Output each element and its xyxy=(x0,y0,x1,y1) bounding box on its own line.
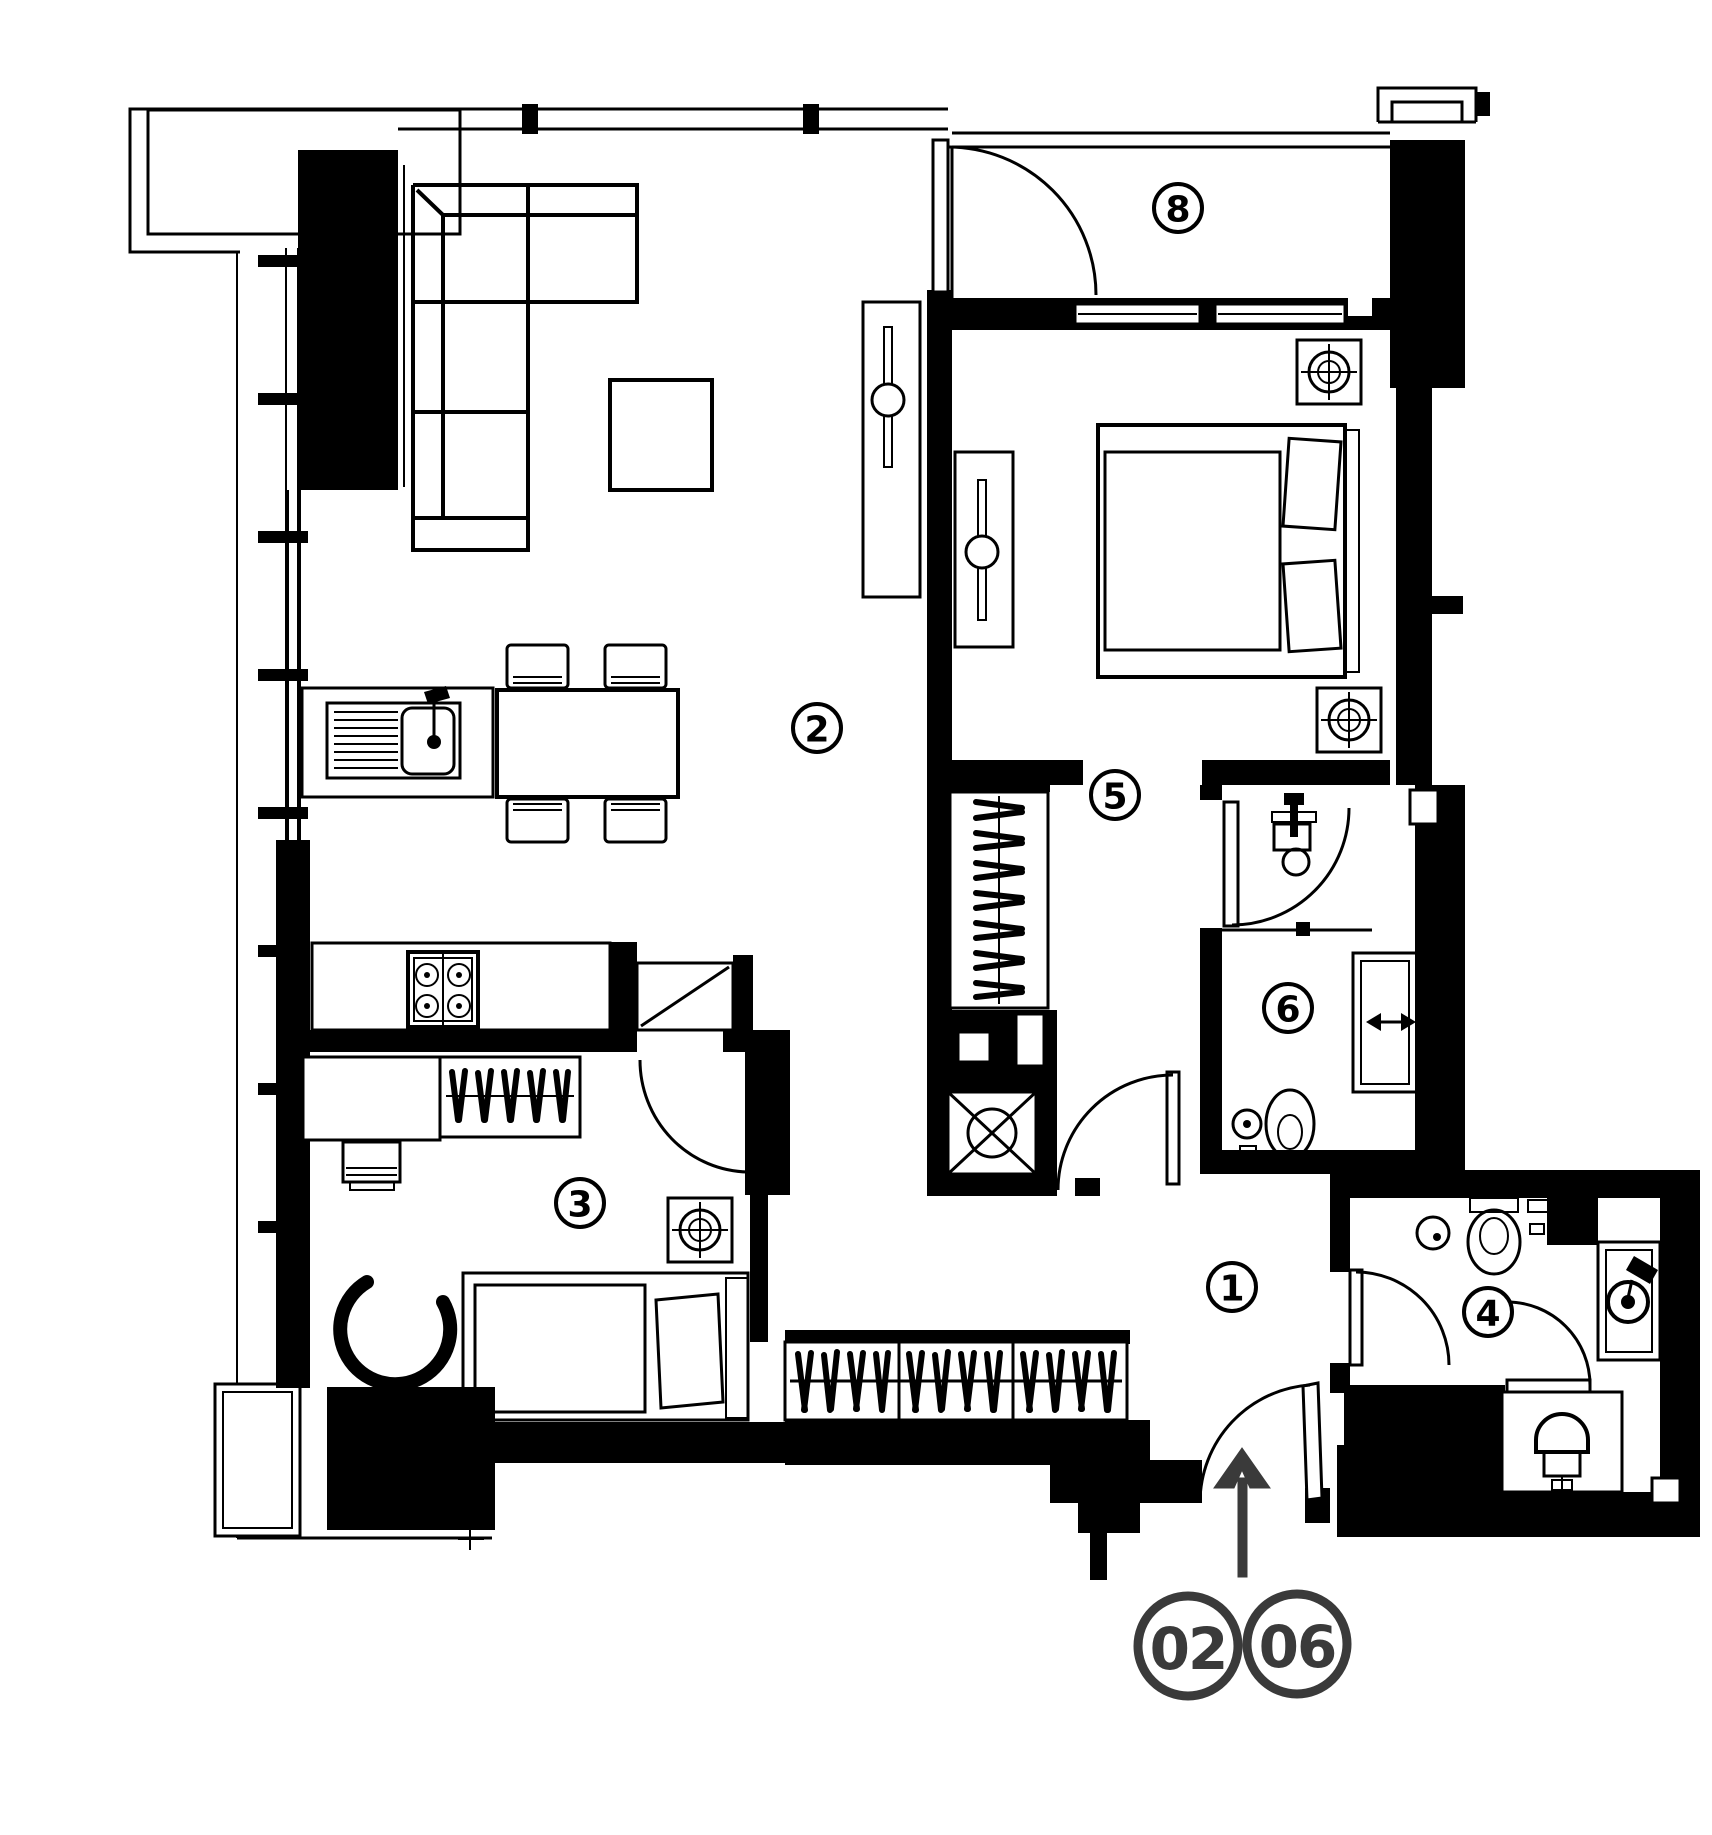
bedroom-furniture xyxy=(950,340,1381,1008)
wall-segment xyxy=(298,150,398,490)
wall-tick xyxy=(803,104,819,134)
bath6-west-wall xyxy=(1200,928,1222,1170)
dining-chair xyxy=(605,799,666,842)
door-leaf xyxy=(1224,802,1238,926)
door-leaf xyxy=(1167,1072,1179,1184)
washbasin xyxy=(1272,793,1316,875)
entry-wardrobe xyxy=(785,1342,1127,1420)
shower xyxy=(1353,953,1417,1092)
arrow-icon xyxy=(1366,1013,1381,1031)
pillow xyxy=(1283,560,1341,651)
dining-set xyxy=(497,645,678,842)
living-bedroom-wall xyxy=(927,290,952,1058)
room8-top-wall xyxy=(952,133,1390,147)
ceiling-light-icon xyxy=(1297,340,1361,404)
storage-niche xyxy=(958,1032,990,1062)
bath6-west-wall xyxy=(1200,785,1222,800)
balcony-planter xyxy=(215,1384,300,1536)
desk xyxy=(303,1057,440,1140)
top-right-step-parapet xyxy=(1378,88,1476,122)
toilet xyxy=(1468,1198,1520,1274)
door-arc xyxy=(948,147,1096,295)
double-bed xyxy=(1098,425,1359,677)
door-arc xyxy=(1356,1272,1449,1365)
round-basin xyxy=(1417,1217,1449,1249)
pillow xyxy=(656,1294,723,1408)
bath6-east-wall xyxy=(1415,785,1465,1174)
bedroom-south-wall xyxy=(930,760,1083,785)
mattress xyxy=(475,1285,645,1412)
svg-text:02: 02 xyxy=(1150,1615,1227,1683)
entrance-step xyxy=(1090,1533,1107,1580)
door-jamb xyxy=(1075,1178,1100,1196)
pillow xyxy=(1283,438,1341,529)
floor-plan-page: 1 2 3 4 5 6 8 02 xyxy=(0,0,1712,1831)
door-arc xyxy=(640,1060,748,1172)
desk-chair xyxy=(343,1142,400,1190)
dining-chair xyxy=(507,799,568,842)
headboard xyxy=(1345,430,1359,672)
dining-chair xyxy=(507,645,568,688)
room-label-1: 1 xyxy=(1208,1263,1256,1311)
corner-sofa xyxy=(413,185,637,550)
bath4-pier xyxy=(1547,1198,1598,1245)
kitchen-stove-counter xyxy=(312,943,733,1030)
room-label-5: 5 xyxy=(1091,771,1139,819)
living-top-wall xyxy=(398,109,948,129)
room-label-2: 2 xyxy=(793,704,841,752)
kitchen-south-wall xyxy=(305,1030,637,1052)
svg-text:4: 4 xyxy=(1475,1294,1500,1335)
svg-text:1: 1 xyxy=(1219,1269,1244,1310)
south-wall xyxy=(785,1420,1150,1465)
entrance-arrow-icon xyxy=(1238,1478,1247,1577)
room-label-6: 6 xyxy=(1264,984,1312,1032)
shower xyxy=(1598,1242,1660,1360)
wall-step xyxy=(1425,596,1463,614)
bath4-north-wall xyxy=(1330,1170,1660,1198)
door-leaf xyxy=(933,140,948,292)
svg-text:6: 6 xyxy=(1275,990,1300,1031)
wall-tick xyxy=(522,104,538,134)
coffee-table xyxy=(610,380,712,490)
svg-text:3: 3 xyxy=(567,1185,592,1226)
door-arc xyxy=(1058,1075,1173,1190)
mattress xyxy=(1105,452,1280,650)
room-label-3: 3 xyxy=(556,1179,604,1227)
svg-text:2: 2 xyxy=(804,710,829,751)
entrance-door-leaf xyxy=(1303,1383,1322,1500)
kitchen-sink-counter xyxy=(302,686,493,797)
alcove-washbasin xyxy=(1502,1392,1622,1492)
floor-plan-drawing: 1 2 3 4 5 6 8 02 xyxy=(0,0,1712,1831)
door-jamb xyxy=(928,292,952,338)
bedroom-east-wall xyxy=(1396,385,1432,785)
wall-segment xyxy=(723,1030,790,1052)
single-bed xyxy=(463,1273,748,1420)
door-leaf xyxy=(1350,1270,1362,1365)
door-arc xyxy=(1507,1302,1590,1385)
unit-badge-06: 06 xyxy=(1247,1594,1347,1694)
wall-notch xyxy=(1652,1478,1680,1503)
wall-niche xyxy=(1410,790,1438,824)
room3-wardrobe xyxy=(440,1057,580,1137)
south-west-corner-wall xyxy=(327,1387,495,1530)
bedroom-closet xyxy=(950,792,1048,1008)
bath4-west-wall xyxy=(1330,1198,1350,1272)
wall-pier xyxy=(610,942,637,1050)
room3-east-wall xyxy=(750,1195,768,1342)
ceiling-light-icon xyxy=(1317,688,1381,752)
dining-table xyxy=(497,690,678,797)
wall-notch xyxy=(1348,298,1372,316)
door-leaf xyxy=(1507,1380,1590,1392)
svg-text:8: 8 xyxy=(1165,190,1190,231)
bath4-west-wall xyxy=(1330,1363,1350,1393)
room-label-4: 4 xyxy=(1464,1288,1512,1336)
bathroom6-fixtures xyxy=(1233,793,1417,1166)
entrance-step xyxy=(1078,1503,1140,1533)
paper-holder-icon xyxy=(1528,1200,1548,1234)
room8-east-wall xyxy=(1390,140,1465,388)
ceiling-light-icon xyxy=(668,1198,732,1262)
wall-tick xyxy=(1296,922,1310,936)
dining-chair xyxy=(605,645,666,688)
threshold-tick xyxy=(458,1528,484,1550)
room-label-8: 8 xyxy=(1154,184,1202,232)
svg-text:06: 06 xyxy=(1259,1613,1336,1681)
entrance-left-jamb xyxy=(1050,1460,1202,1503)
svg-text:5: 5 xyxy=(1102,777,1127,818)
bedroom-south-wall xyxy=(1202,760,1390,785)
room3-furniture xyxy=(303,1057,748,1420)
wall-nub xyxy=(1476,92,1490,116)
unit-badge-02: 02 xyxy=(1138,1596,1238,1696)
storage-niche xyxy=(1016,1014,1044,1066)
room3-east-wall xyxy=(745,1052,790,1195)
service-shaft xyxy=(927,1078,1057,1196)
headboard xyxy=(726,1278,748,1418)
armchair xyxy=(340,1282,450,1384)
wall-segment xyxy=(1344,1385,1505,1537)
